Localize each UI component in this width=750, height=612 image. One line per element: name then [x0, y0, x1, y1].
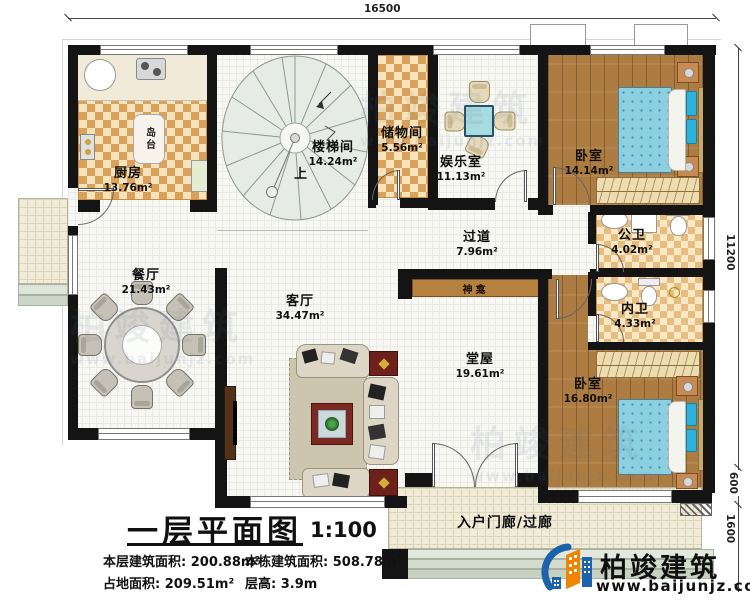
room-label-kitchen: 厨房13.76m² [104, 166, 153, 194]
dim-top-value: 16500 [362, 3, 403, 15]
room-label-bedroom2: 卧室16.80m² [564, 377, 613, 405]
room-label-stair: 楼梯间14.24m² [309, 140, 358, 168]
bed-mattress [618, 87, 672, 173]
dim-line-right [738, 48, 739, 592]
room-label-privbath: 内卫4.33m² [614, 302, 655, 330]
door-leaf-recreation [524, 170, 527, 202]
dim-step-value: 600 [727, 470, 739, 496]
brand-logo-icon [540, 541, 596, 599]
chair [469, 81, 490, 103]
window-stair [250, 45, 338, 55]
door-leaf-bedroom1 [553, 167, 556, 205]
wall-left [68, 45, 78, 188]
tv-cabinet [224, 386, 236, 460]
window-recreation [433, 45, 520, 55]
side-table [369, 351, 398, 376]
window-dining [98, 428, 190, 440]
wall-living-south [385, 496, 407, 508]
bed-blanket [668, 89, 686, 171]
side-porch-step [18, 284, 68, 295]
wall-recreation-south [428, 198, 495, 210]
wardrobe-rod [597, 191, 701, 192]
window-pubbath [703, 217, 715, 260]
dim-line-top [68, 18, 716, 19]
wall-right [703, 260, 715, 290]
tv-icon [233, 401, 237, 445]
dining-table-center [122, 325, 162, 365]
nightstand-lamp [683, 477, 693, 487]
appliance-knob [85, 139, 91, 145]
sofa-cushion [312, 473, 330, 488]
door-leaf-bedroom2 [556, 279, 559, 319]
plan-scale: 1:100 [310, 518, 377, 542]
side-porch-floor [18, 198, 68, 284]
nightstand [677, 62, 699, 83]
bed-pillow [686, 429, 697, 452]
mahjong-table [464, 105, 494, 137]
shrine-label: 神龛 [463, 281, 489, 296]
wall-left [68, 295, 78, 440]
exterior-outline [62, 39, 721, 40]
door-leaf-storage [397, 170, 400, 200]
wall-right [703, 323, 715, 493]
wall-bedroom2-south [538, 490, 578, 503]
wall-right [703, 45, 715, 217]
door-leaf-privbath [596, 314, 599, 342]
wall-bedroom1-west [538, 45, 548, 212]
window-dining-west [68, 235, 78, 295]
dim-porch-value: 1600 [724, 512, 736, 545]
sofa-top [296, 344, 370, 378]
room-label-storage: 储物间5.56m² [381, 126, 423, 154]
sofa-cushion [369, 405, 385, 419]
room-label-bedroom1: 卧室14.14m² [565, 149, 614, 177]
wall-bath-south [588, 342, 712, 350]
stat-total-area: 本栋建筑面积: 508.78m² [245, 551, 402, 570]
toilet-icon [670, 216, 687, 236]
coffee-table [311, 403, 353, 445]
wall-stair-storage [368, 45, 378, 205]
sink-icon [601, 283, 628, 301]
window-bedroom1 [590, 45, 665, 55]
kitchen-island: 岛台 [133, 114, 165, 164]
sofa-right [363, 377, 399, 465]
side-table-star [378, 477, 389, 488]
room-label-hall: 堂屋19.61m² [456, 352, 505, 380]
side-table-star [378, 358, 389, 369]
stove-icon [136, 58, 166, 80]
stair-up-label: 上 [294, 167, 308, 183]
sofa-cushion [302, 348, 319, 363]
sofa-bottom [302, 468, 370, 498]
wardrobe [596, 351, 700, 378]
stove-burner [141, 62, 149, 70]
room-label-pubbath: 公卫4.02m² [611, 228, 652, 256]
chair [78, 334, 102, 356]
floor-plan-canvas: 岛台 [0, 0, 750, 612]
dim-right-value: 11200 [724, 232, 736, 273]
door-leaf-hall-right [515, 443, 518, 487]
bed-blanket [668, 401, 686, 473]
sofa-cushion [368, 424, 386, 441]
appliance-knob [85, 149, 91, 155]
sofa-cushion [320, 351, 335, 364]
sofa-cushion [340, 348, 359, 364]
brand-url: www.baijunjz.com [596, 577, 750, 595]
room-label-living: 客厅34.47m² [276, 294, 325, 322]
wall-bath-west [588, 212, 596, 244]
bed-pillow [686, 403, 697, 426]
wall-bedroom1-south [538, 205, 553, 215]
bed-pillow [686, 119, 697, 144]
nightstand-lamp [684, 68, 694, 78]
wall-kitchen-east [207, 45, 217, 205]
plant-icon [325, 417, 339, 431]
sofa-cushion [332, 473, 350, 489]
nightstand-lamp [683, 382, 693, 392]
wall-bedroom1-south [590, 205, 712, 215]
side-porch-step [18, 295, 68, 306]
chair [494, 112, 516, 131]
drain-icon [669, 287, 680, 298]
island-label: 岛台 [142, 127, 157, 151]
chair [182, 334, 206, 356]
sofa-cushion [368, 383, 387, 400]
bed-pillow [686, 91, 697, 116]
wall-kitchen-south [190, 200, 217, 212]
kitchen-sink [84, 59, 116, 91]
chair [445, 112, 466, 132]
bed-mattress [618, 399, 672, 475]
title-underline [127, 543, 303, 546]
chair [131, 385, 153, 409]
stat-floor-area: 本层建筑面积: 200.88m² [103, 551, 260, 570]
door-leaf-pubbath [596, 244, 599, 272]
room-label-porch: 入户门廊/过廊 [457, 515, 553, 532]
stove-burner [153, 68, 161, 76]
window-kitchen [100, 45, 188, 55]
bay-window [634, 24, 688, 46]
shrine-cabinet: 神龛 [412, 279, 539, 297]
window-privbath [703, 290, 715, 323]
porch-pilaster [680, 503, 712, 516]
side-table [369, 469, 398, 496]
room-label-recreation: 娱乐室11.13m² [437, 155, 486, 183]
sofa-cushion [368, 444, 386, 460]
nightstand [676, 473, 698, 489]
door-leaf-hall-left [432, 443, 435, 487]
window-bedroom2 [578, 490, 672, 503]
bay-window [530, 24, 586, 46]
nightstand [676, 376, 698, 396]
wall-recreation-south [528, 198, 538, 210]
toilet-tank [638, 278, 660, 286]
wardrobe [596, 177, 700, 204]
wall-dining-south [68, 428, 98, 440]
room-label-dining: 餐厅21.43m² [122, 268, 171, 296]
stat-land-area: 占地面积: 209.51m² [103, 573, 234, 592]
wall-hall-bedroom2 [538, 269, 548, 492]
wall-hall-south [405, 473, 432, 487]
room-label-corridor: 过道7.96m² [456, 230, 497, 258]
kitchen-appliance [80, 134, 95, 160]
stat-floor-height: 层高: 3.9m [245, 573, 317, 592]
wardrobe-rod [597, 365, 701, 366]
wall-corridor-south [398, 269, 552, 279]
